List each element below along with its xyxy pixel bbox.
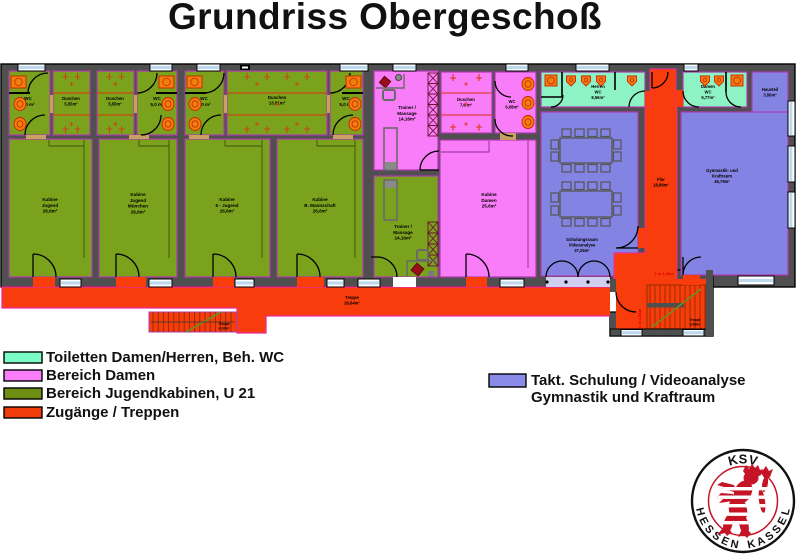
svg-text:Trainer /Massage14,16m²: Trainer /Massage14,16m² (397, 105, 417, 122)
svg-text:1 m 1,86m: 1 m 1,86m (637, 308, 642, 328)
svg-text:Bereich Damen: Bereich Damen (46, 367, 155, 384)
svg-text:Duschen5,55m²: Duschen5,55m² (106, 96, 124, 106)
svg-text:Bereich Jugendkabinen, U 21: Bereich Jugendkabinen, U 21 (46, 385, 255, 402)
svg-text:Toiletten Damen/Herren, Beh. W: Toiletten Damen/Herren, Beh. WC (46, 349, 284, 366)
svg-text:KabineDamen25,6m²: KabineDamen25,6m² (481, 192, 497, 209)
svg-text:S: S (739, 452, 748, 467)
svg-text:KabineJugend26,6m²: KabineJugend26,6m² (42, 197, 59, 214)
svg-text:KabineJugendMünchen26,6m²: KabineJugendMünchen26,6m² (128, 192, 148, 214)
svg-text:Treppe4,16m²: Treppe4,16m² (218, 322, 230, 331)
svg-text:Trainer /Massage14,16m²: Trainer /Massage14,16m² (393, 224, 413, 241)
svg-text:Treppe3,06m²: Treppe3,06m² (689, 318, 701, 327)
svg-text:Hausteil3,56m²: Hausteil3,56m² (762, 87, 778, 97)
svg-text:Gymnastik und Kraftraum: Gymnastik und Kraftraum (531, 389, 715, 406)
svg-text:Zugänge / Treppen: Zugänge / Treppen (46, 404, 179, 421)
svg-text:Duschen5,55m²: Duschen5,55m² (62, 96, 80, 106)
svg-text:1 m 1,86m: 1 m 1,86m (654, 271, 674, 276)
svg-text:Takt. Schulung / Videoanalyse: Takt. Schulung / Videoanalyse (531, 372, 746, 389)
svg-text:Grundriss Obergeschoß: Grundriss Obergeschoß (168, 0, 602, 37)
svg-text:Treppe26,64m²: Treppe26,64m² (344, 295, 360, 305)
